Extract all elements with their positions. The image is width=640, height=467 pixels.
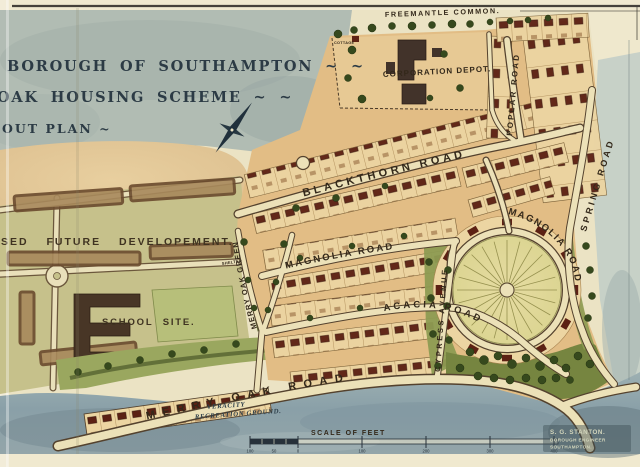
map-canvas: BOROUGH OF SOUTHAMPTON ~ ~ OAK HOUSING S… (0, 0, 640, 467)
title-line-2: OAK HOUSING SCHEME ~ ~ (0, 89, 293, 106)
title-line-1: BOROUGH OF SOUTHAMPTON ~ ~ (7, 58, 365, 75)
signature-block: S. G. STANTON. BOROUGH ENGINEER SOUTHAMP… (543, 425, 631, 452)
cul-de-sac (297, 157, 310, 170)
signature-title: BOROUGH ENGINEER (550, 438, 606, 443)
signature-place: SOUTHAMPTON. (550, 445, 592, 450)
label-cottage: COTTAGE (334, 41, 355, 45)
scale-tick-3: 100 (359, 449, 367, 454)
scale-bar-title: SCALE OF FEET (311, 430, 386, 437)
signature-name: S. G. STANTON. (550, 429, 605, 436)
scale-tick-1: 50 (272, 449, 277, 454)
scale-tick-0: 100 (247, 449, 255, 454)
merry-oak-plan-svg: BOROUGH OF SOUTHAMPTON ~ ~ OAK HOUSING S… (0, 0, 640, 467)
label-school-site: SCHOOL SITE. (102, 317, 195, 328)
label-future-development: SED FUTURE DEVELOPEMENT. (1, 236, 234, 248)
scale-tick-4: 200 (423, 449, 431, 454)
scale-tick-5: 300 (487, 449, 495, 454)
title-line-3: OUT PLAN ~ (2, 121, 112, 136)
school-site-parcel (152, 286, 238, 342)
